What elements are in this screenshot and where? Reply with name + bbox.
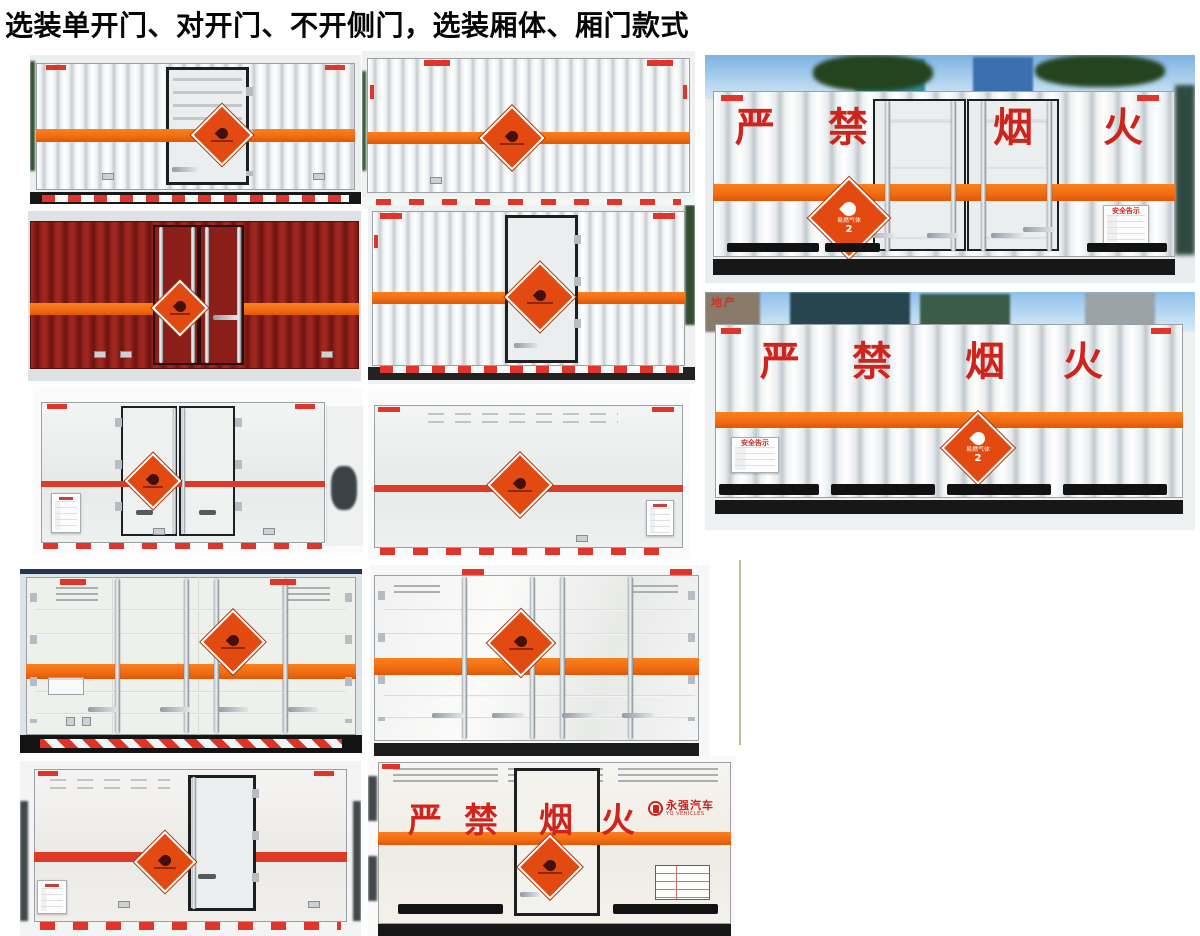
door-handle [199,510,216,515]
flame-icon [504,129,520,145]
panel-recess-line [36,713,346,715]
hazard-diamond-content [135,463,171,499]
no-fire-text-char: 火 [601,804,635,838]
under-box-slot [825,243,880,252]
truck-photo-4 [28,211,361,381]
reflector-strip [1151,328,1171,334]
latch [102,173,114,180]
placard-text-line [527,302,552,304]
under-box-slot [719,484,819,495]
no-fire-text-char: 烟 [539,804,573,838]
warning-stripe [244,303,359,315]
no-fire-text-char: 火 [1063,342,1103,382]
placard-text-line [221,647,244,649]
placard-text-line [211,140,233,142]
reflector-strip [721,95,743,101]
certification-plate [48,677,84,695]
reflector-strip [1137,95,1159,101]
lock-rod [981,101,986,251]
door-handle [136,510,153,515]
tree-background [920,294,1010,328]
vent-slits [428,421,618,423]
reflector-strip [295,404,315,409]
brand-name-en: YQ VEHICLES [666,812,714,817]
reflector-strip [314,771,334,776]
truck-photo-9 [20,569,362,753]
lock-rod [237,227,241,363]
background-truck-part [368,776,377,821]
truck-photo-5 [368,205,695,384]
reflector-strip [370,85,374,99]
placard-text-line [154,867,176,869]
background-sign-text: 地产 [711,294,737,310]
latch [321,351,333,358]
hazard-diamond-content [145,842,185,882]
no-fire-text-char: 火 [1103,108,1143,148]
hazard-diamond-content [491,117,533,159]
vent-slits [428,413,618,415]
flame-icon [157,853,173,869]
safety-notice-title [45,884,59,887]
palm-tree [813,55,933,91]
background-wheel [20,801,28,921]
placard-text-line [143,486,163,488]
lock-rod [205,227,209,363]
truck-photo-11 [20,761,361,936]
plant-stem [739,560,741,745]
door-panel-recess [887,119,955,169]
reflective-tape [42,195,349,202]
safety-notice-table [735,447,774,470]
vent-louver [632,585,678,597]
hazard-diamond-content [517,274,563,320]
reflector-strip [325,65,345,70]
door-handle [432,713,464,718]
bumper [713,259,1175,275]
safety-notice-placard: 安全告示 [1103,205,1149,245]
under-box-slot [1087,243,1167,252]
vent-louver [394,585,440,597]
latch [82,717,91,726]
sky-background [20,569,362,574]
flame-icon [172,299,188,315]
flame-icon [225,633,241,649]
reflector-strip [60,579,86,585]
reflector-strip [647,60,673,66]
latch [153,528,165,535]
placard-text-line [509,648,533,650]
placard-text-line [170,313,190,315]
panel-recess-line [384,609,695,611]
door-handle [927,233,959,238]
reflector-strip [721,328,741,334]
reflective-tape [43,543,323,549]
door-handle [172,167,198,172]
hazard-diamond-content: 易燃气体 2 [954,424,1002,472]
panel-recess-line [36,609,346,611]
cargo-door [188,775,256,911]
truck-photo-6: 地产 严 禁 烟 火 安全告示 易燃气体 2 [705,292,1195,530]
flame-icon [214,126,230,142]
foliage-background [1175,85,1195,255]
lock-rod [182,408,185,534]
reflective-tape [380,548,677,555]
latch [313,173,325,180]
background-truck-part [368,856,377,901]
flame-icon [542,858,558,874]
foliage-background [362,71,366,171]
latch [576,535,588,542]
safety-notice-placard [646,500,674,536]
reflective-tape [40,739,342,748]
safety-notice-table [55,501,78,530]
placard-text-line [500,143,523,145]
under-box-slot [947,484,1051,495]
flame-icon [145,472,161,488]
panel-seam [198,577,199,735]
background-truck-wheel [331,466,357,510]
no-fire-text-char: 烟 [965,342,1005,382]
safety-notice-title [653,504,666,507]
under-box-slot [831,484,935,495]
door-handle [213,315,238,320]
door-hinges [345,593,352,723]
reflector-strip [652,407,674,412]
truck-photo-3: 严 禁 烟 火 易燃气体 2 安全告示 [705,55,1195,283]
vent-slits [50,787,170,789]
flame-icon [839,199,859,219]
placard-label: 易燃气体 [966,447,990,453]
placard-text-line [508,490,531,492]
reflective-tape [380,366,683,373]
under-box-slot [398,904,503,914]
placard-class-number: 2 [975,454,982,464]
safety-notice-table [41,888,64,911]
safety-notice-title: 安全告示 [1112,208,1140,215]
safety-notice-placard [37,880,67,914]
safety-notice-title: 安全告示 [741,440,769,447]
no-fire-text-char: 严 [760,342,800,382]
latch [94,351,106,358]
door-hinges [115,418,122,528]
no-fire-text-char: 严 [408,804,442,838]
bumper [368,367,695,380]
vent-louver [618,768,718,782]
hazard-diamond-content [499,464,541,506]
lock-rod [885,101,890,251]
warning-stripe [715,412,1183,428]
hazard-diamond-content [202,115,242,155]
truck-photo-12: 严 禁 烟 火 永强汽车 YQ VEHICLES [368,756,735,936]
reflector-strip [46,65,66,70]
reflector-strip [424,60,450,66]
latch [66,717,75,726]
no-fire-text-char: 禁 [852,342,892,382]
reflector-strip [374,235,378,248]
flame-icon [513,634,529,650]
cargo-door-right [179,406,235,536]
door-handle [991,233,1023,238]
door-hinges [574,235,581,354]
door-handle [198,874,216,879]
hazard-diamond-content [212,621,254,663]
reflector-strip [380,213,402,219]
hazard-diamond-content [499,621,543,665]
latch [430,177,442,184]
door-handle [562,713,594,718]
reflector-strip [382,764,400,769]
panel-recess-line [384,695,695,697]
flame-icon [512,476,528,492]
brand-logo: 永强汽车 YQ VEHICLES [648,800,714,817]
safety-notice-table [1107,215,1145,242]
palm-tree [1035,55,1165,87]
placard-label: 易燃气体 [837,217,861,223]
latch [118,901,130,908]
safety-notice-placard [51,493,81,533]
door-handle [1023,227,1055,232]
warning-stripe [30,303,153,315]
vent-louver [393,768,498,782]
reflector-strip [378,407,400,412]
lock-rod [951,101,956,251]
under-box-slot [1063,484,1167,495]
truck-photo-8 [368,389,691,560]
bumper [715,500,1183,514]
hazard-diamond-content: 易燃气体 2 [822,191,876,245]
warning-stripe [713,184,1175,201]
door-hinges [688,591,695,721]
bumper [378,924,731,936]
no-fire-text-char: 禁 [828,108,868,148]
placard-class-number: 2 [846,225,853,235]
brand-emblem-glyph [653,805,659,813]
truck-photo-7 [33,388,363,553]
under-box-slot [727,243,819,252]
reflector-strip [38,771,58,776]
door-handle [160,707,190,712]
foliage-background [685,205,695,325]
brand-emblem-icon [648,801,663,816]
door-hinges [235,418,242,528]
hazard-diamond-content [529,846,571,888]
brand-text: 永强汽车 YQ VEHICLES [666,800,714,817]
spec-table [655,865,710,900]
reflector-strip [47,404,67,409]
reflector-strip [670,569,692,575]
door-handle [514,343,538,348]
latch [263,528,275,535]
truck-photo-1 [30,55,361,204]
vent-louver [56,587,98,601]
reflector-strip [270,579,296,585]
safety-notice-table [650,508,671,533]
hazard-diamond-content [162,290,198,326]
reflective-tape [40,922,341,930]
no-fire-text-char: 禁 [464,804,498,838]
door-hinges [252,789,259,906]
safety-notice-title [59,497,73,500]
lock-rod [192,777,196,909]
latch [308,901,320,908]
truck-photo-2 [362,51,695,209]
panel-recess-line [36,633,346,635]
door-handle [288,707,318,712]
vent-slits [50,779,170,781]
door-handle [218,707,248,712]
door-hinges [30,593,37,723]
door-handle [492,713,524,718]
door-hinges [378,591,385,721]
reflector-strip [683,85,687,99]
door-handle [622,713,654,718]
under-box-slot [613,904,718,914]
lock-rod [173,408,176,534]
door-handle [88,707,118,712]
flame-icon [532,288,548,304]
no-fire-text-char: 严 [735,108,775,148]
bumper [374,743,699,757]
reflector-strip [462,569,484,575]
door-handle [520,892,540,897]
vent-louver [288,587,330,601]
page: 选装单开门、对开门、不开侧门，选装厢体、厢门款式 [0,0,1200,936]
latch [120,351,132,358]
no-fire-text-char: 烟 [993,108,1033,148]
bumper [30,192,361,204]
safety-notice-placard: 安全告示 [731,437,779,473]
background-wheel [353,801,361,921]
reflector-strip [653,213,675,219]
truck-photo-10 [370,565,709,757]
foliage-background [30,61,35,171]
page-title: 选装单开门、对开门、不开侧门，选装厢体、厢门款式 [5,4,689,44]
placard-text-line [538,872,561,874]
